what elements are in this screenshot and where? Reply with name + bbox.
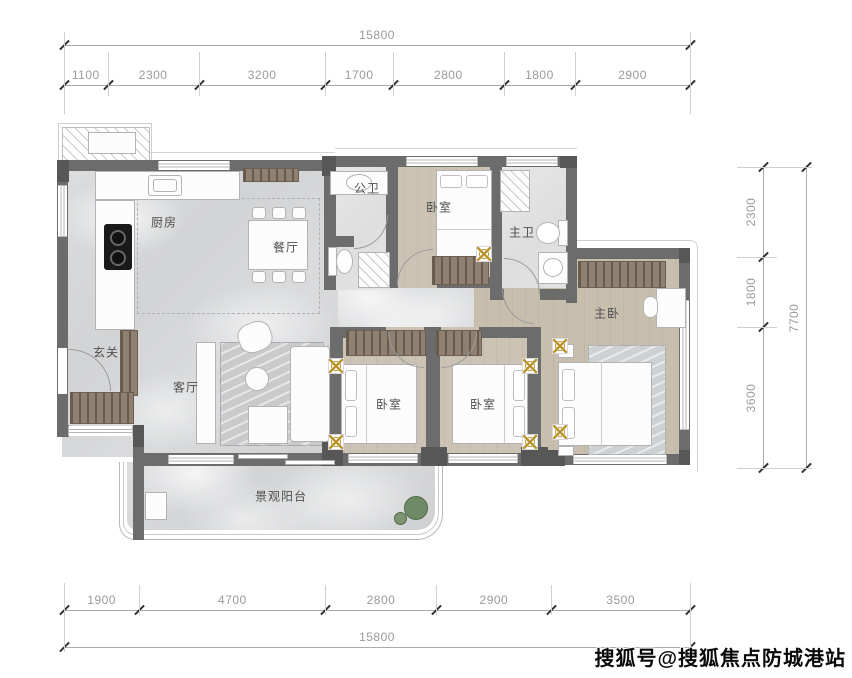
dim-label: 3500 [606, 593, 635, 607]
dim-extension-line [64, 583, 65, 652]
dim-extension-line [551, 585, 552, 615]
dim-line [763, 167, 764, 468]
column-4 [679, 248, 690, 263]
ceiling-light-7 [552, 424, 568, 440]
dim-extension-line [737, 327, 777, 328]
ceiling-light-3 [522, 358, 538, 374]
column-5 [679, 450, 690, 465]
dim-label: 1900 [87, 593, 116, 607]
dim-label: 7700 [787, 303, 801, 332]
eave-line-top-a [150, 152, 335, 153]
column-3 [560, 156, 577, 168]
dim-extension-line [325, 52, 326, 96]
stove-burner-2 [110, 250, 126, 266]
dim-label: 1700 [345, 68, 374, 82]
room-label-master-bathroom: 主卫 [509, 224, 535, 241]
dim-extension-line [575, 52, 576, 96]
ceiling-light-1 [328, 358, 344, 374]
masterbath-basin [543, 258, 563, 277]
room-label-guest-bathroom: 公卫 [354, 180, 380, 197]
ottoman [248, 406, 288, 444]
wall-masterbath-south-b [540, 289, 572, 300]
window-bedroomSW-south [348, 454, 418, 463]
dim-extension-line [64, 32, 65, 114]
bedroomN-blanket-line [437, 229, 491, 230]
dining-chair-5 [272, 271, 286, 283]
dim-label: 3200 [248, 68, 277, 82]
room-label-balcony: 景观阳台 [255, 488, 307, 505]
dim-extension-line [504, 52, 505, 96]
dining-chair-3 [292, 207, 306, 219]
room-label-kitchen: 厨房 [151, 214, 177, 231]
room-label-dining-room: 餐厅 [273, 239, 299, 256]
dim-extension-line [436, 585, 437, 615]
dim-label: 3600 [744, 383, 758, 412]
dining-cabinet [243, 168, 299, 182]
dim-extension-line [737, 468, 812, 469]
master-desk [656, 288, 686, 328]
room-label-foyer: 玄关 [93, 344, 119, 361]
foyer-cabinet-tall [120, 330, 138, 396]
room-label-bedroom-south-right: 卧室 [470, 396, 496, 413]
bedroomSE-pillow-2 [513, 406, 525, 437]
column-8 [421, 447, 447, 466]
dim-extension-line [325, 585, 326, 615]
master-wardrobe [578, 261, 666, 288]
bedroomN-pillow-1 [440, 175, 462, 188]
dim-label: 15800 [359, 28, 395, 42]
bedroomN-pillow-2 [466, 175, 488, 188]
dim-label: 1100 [72, 68, 100, 82]
stove-burner-1 [110, 230, 126, 246]
master-nightstand-bottom [558, 446, 574, 456]
dim-extension-line [393, 52, 394, 96]
wall-corridor-c [479, 327, 533, 338]
dim-extension-line [737, 167, 812, 168]
dim-extension-line [199, 52, 200, 96]
window-bedroomSE-south [448, 454, 518, 463]
guestbath-toilet-bowl [336, 249, 353, 274]
dim-line [806, 167, 807, 468]
door-opening-entry [58, 348, 67, 394]
dining-chair-2 [272, 207, 286, 219]
coffee-table [245, 367, 269, 391]
balcony-slider-leaf-a [238, 454, 288, 459]
dim-label: 1800 [525, 68, 554, 82]
dim-label: 2300 [744, 198, 758, 227]
column-1 [57, 160, 69, 182]
dim-label: 15800 [359, 630, 395, 644]
room-label-living-room: 客厅 [173, 379, 199, 396]
guestbath-shower [358, 252, 390, 288]
master-chair [643, 296, 658, 318]
dim-extension-line [108, 52, 109, 96]
window-bedroomN-north [406, 157, 478, 166]
watermark: 搜狐号@搜狐焦点防城港站 [594, 642, 846, 671]
bedroomSW-pillow-1 [345, 370, 357, 401]
column-6 [133, 425, 144, 447]
masterbath-shower [500, 170, 530, 212]
bedroomSW-pillow-2 [345, 406, 357, 437]
dim-label: 2300 [139, 68, 168, 82]
room-label-master-bedroom: 主卧 [594, 305, 620, 322]
dim-label: 2900 [618, 68, 647, 82]
eave-line-top-b [335, 148, 577, 149]
ceiling-light-5 [476, 246, 492, 262]
bedroomSW-blanket-line [366, 365, 367, 443]
master-pillow-1 [562, 369, 575, 401]
window-masterbath-north [506, 157, 558, 166]
dim-line [64, 45, 690, 46]
dining-chair-6 [292, 271, 306, 283]
dim-line [64, 610, 690, 611]
dim-extension-line [139, 585, 140, 615]
ceiling-light-6 [552, 338, 568, 354]
sofa [290, 346, 330, 442]
balcony-slider-leaf-b [285, 460, 335, 465]
master-blanket-line [601, 363, 602, 445]
foyer-cabinet-bench [70, 392, 134, 424]
wall-guestbath-divider [324, 236, 354, 247]
dim-label: 2800 [367, 593, 396, 607]
bedroomSE-pillow-1 [513, 370, 525, 401]
dim-extension-line [737, 257, 777, 258]
room-label-bedroom-south-left: 卧室 [376, 396, 402, 413]
window-living-south [168, 455, 234, 464]
dim-label: 2900 [480, 593, 509, 607]
window-kitchen-west [58, 185, 67, 237]
dim-label: 4700 [218, 593, 247, 607]
dim-line [64, 85, 690, 86]
bedroomSE-blanket-line [504, 365, 505, 443]
wall-master-north [572, 248, 690, 259]
window-foyer-south [68, 426, 133, 436]
room-label-bedroom-north: 卧室 [426, 199, 452, 216]
dim-extension-line [690, 32, 691, 114]
window-master-south [573, 455, 667, 464]
balcony-utility-box [145, 492, 167, 520]
dim-label: 2800 [434, 68, 463, 82]
ceiling-light-4 [522, 434, 538, 450]
ceiling-light-2 [328, 434, 344, 450]
kitchen-sink-basin [153, 179, 177, 192]
balcony-plant-small [394, 512, 407, 525]
balcony-plant-large [404, 496, 428, 520]
master-bed [558, 362, 652, 446]
window-kitchen-north [158, 161, 230, 170]
floorplan-page: 1580011002300320017002800180029001900470… [0, 0, 852, 678]
appliance-balcony-unit [88, 132, 136, 154]
masterbath-toilet-bowl [536, 222, 560, 244]
dining-chair-1 [252, 207, 266, 219]
dim-label: 1800 [744, 278, 758, 307]
dining-chair-4 [252, 271, 266, 283]
